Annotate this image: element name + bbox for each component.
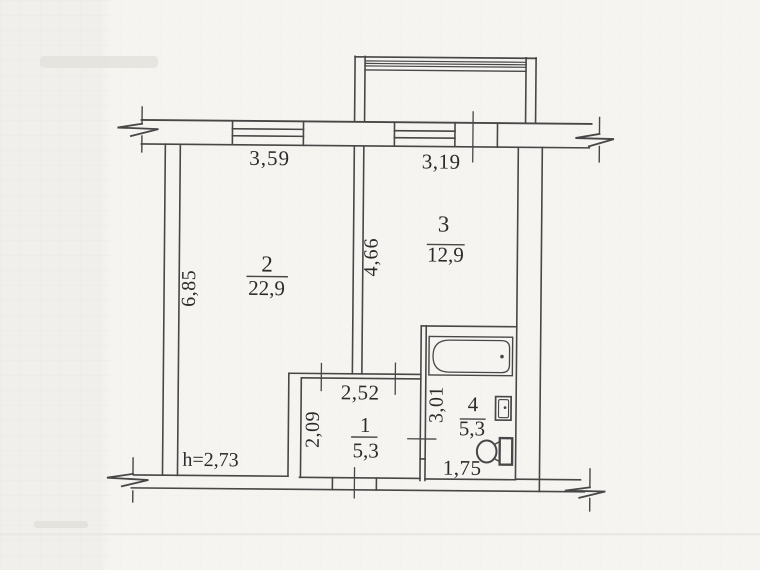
svg-text:1,75: 1,75	[443, 456, 482, 480]
svg-text:3: 3	[438, 212, 450, 237]
svg-text:5,3: 5,3	[352, 438, 378, 462]
svg-text:3,59: 3,59	[249, 146, 290, 170]
svg-text:2: 2	[261, 252, 273, 277]
svg-text:3,19: 3,19	[422, 149, 461, 173]
svg-text:3,01: 3,01	[425, 386, 447, 423]
svg-text:h=2,73: h=2,73	[182, 449, 238, 471]
svg-text:22,9: 22,9	[248, 276, 285, 300]
svg-text:6,85: 6,85	[178, 270, 200, 307]
svg-text:4: 4	[468, 392, 479, 416]
svg-text:5,3: 5,3	[459, 416, 485, 440]
svg-text:12,9: 12,9	[427, 242, 464, 266]
svg-text:2,52: 2,52	[341, 380, 380, 404]
svg-text:2,09: 2,09	[302, 411, 324, 448]
svg-text:1: 1	[360, 413, 371, 437]
svg-text:4,66: 4,66	[360, 237, 382, 276]
